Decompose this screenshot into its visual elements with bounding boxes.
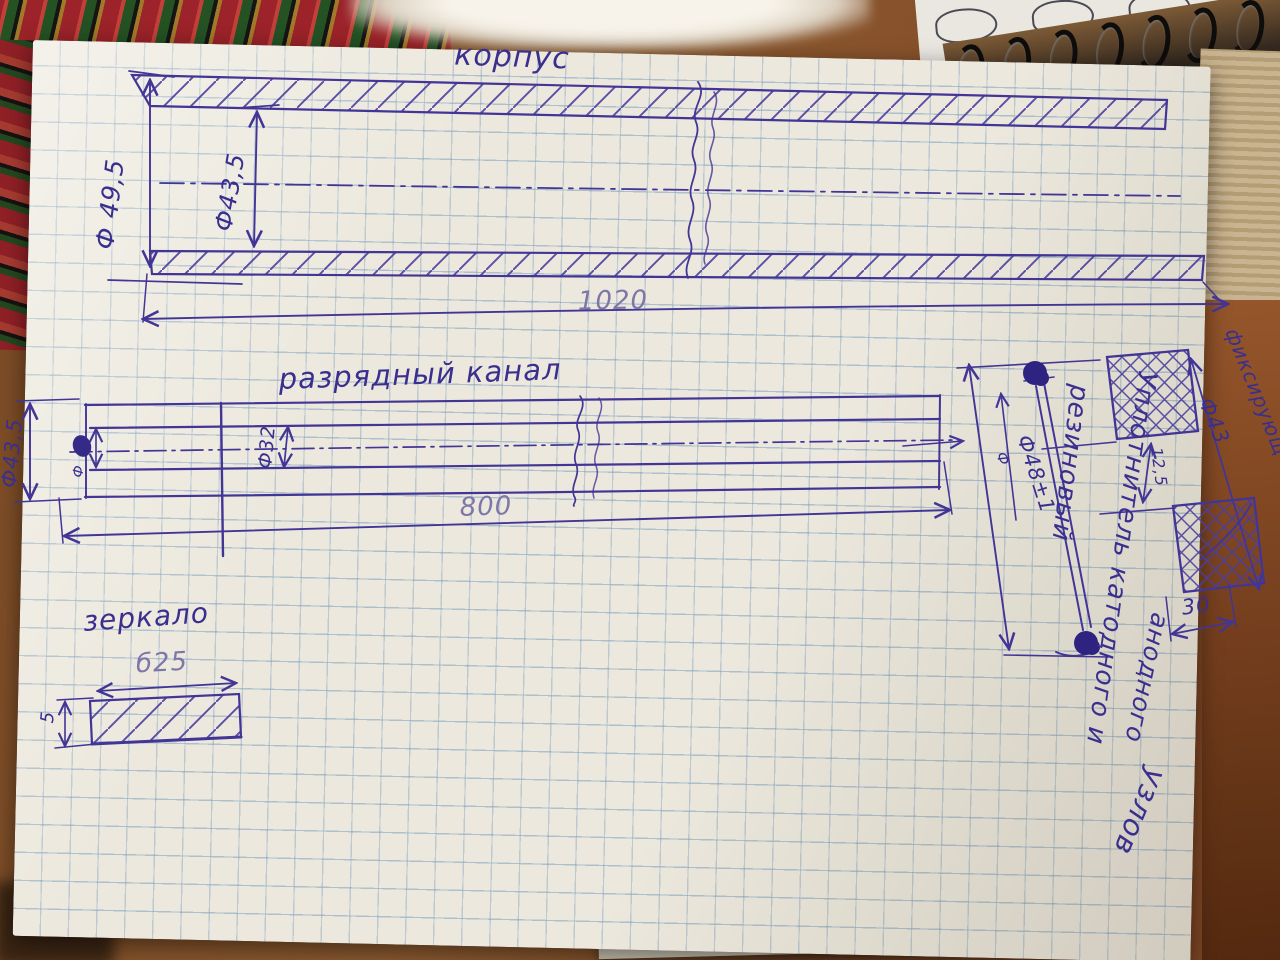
discharge-channel-drawing — [15, 395, 963, 556]
photo-of-sketch: корпус Ф 49,5 Ф43,5 1020 разрядный канал… — [0, 0, 1280, 960]
channel-phi-mark: Ф — [70, 464, 87, 478]
mirror-drawing — [55, 683, 241, 748]
mirror-thickness-dim: 5 — [37, 710, 59, 724]
korpus-title: корпус — [454, 37, 571, 76]
korpus-length-dim: 1020 — [578, 285, 649, 316]
channel-bore-dim: Ф32 — [254, 424, 280, 469]
ink-blot — [70, 433, 94, 460]
mirror-width-dim: б25 — [135, 647, 189, 680]
seal-width-dim: 30 — [1180, 592, 1211, 619]
channel-length-dim: 800 — [459, 491, 513, 523]
ink-linework — [0, 0, 1280, 960]
korpus-drawing — [108, 71, 1228, 322]
